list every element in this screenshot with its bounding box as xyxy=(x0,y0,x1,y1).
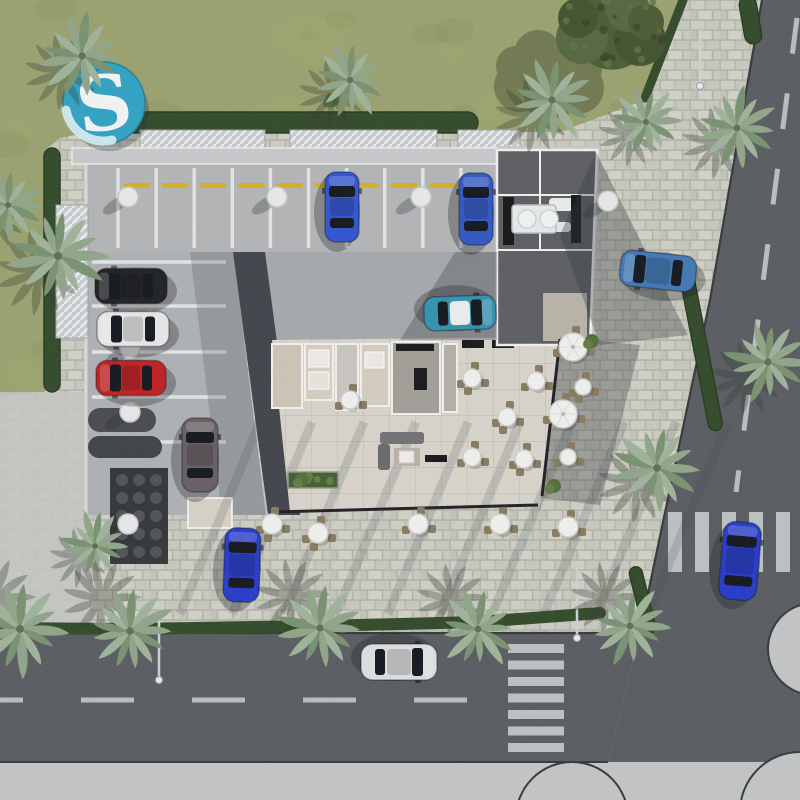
texture-overlay xyxy=(0,0,800,800)
scene-svg: S xyxy=(0,0,800,800)
site-plan-render: S xyxy=(0,0,800,800)
film-grain xyxy=(0,0,800,800)
